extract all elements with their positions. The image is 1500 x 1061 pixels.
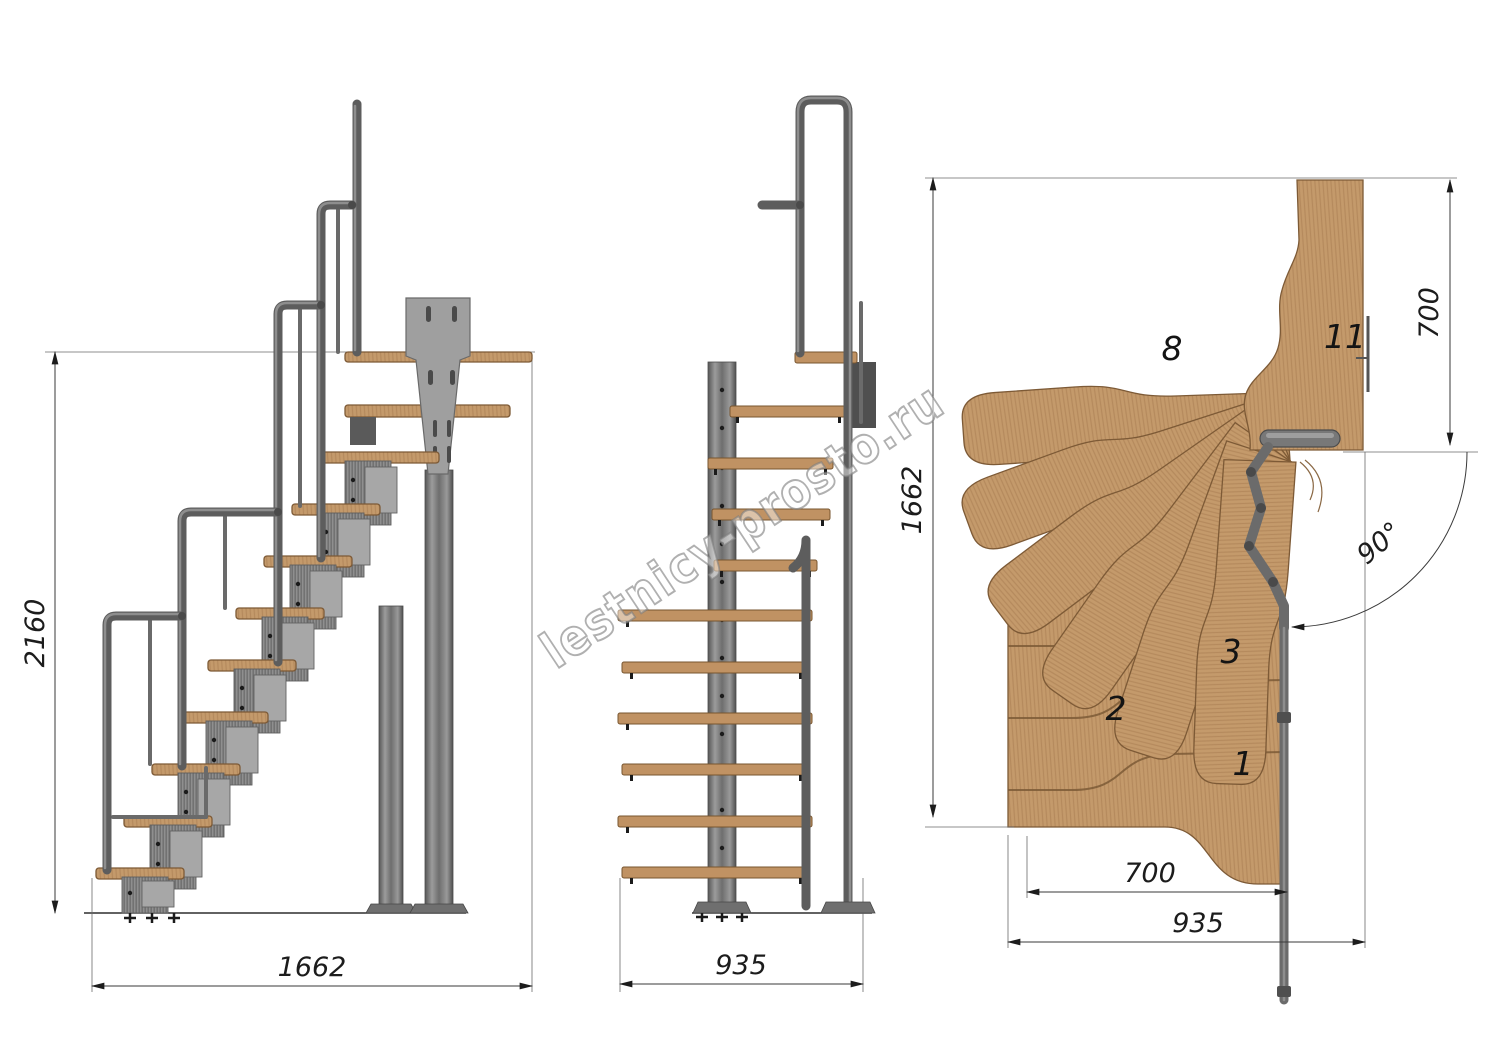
support-columns-side — [366, 470, 468, 913]
plan-view: 1662 700 90° 700 935 1 2 3 8 11 — [897, 178, 1478, 1000]
anchor-bolts — [124, 913, 180, 923]
step-label-2: 2 — [1106, 689, 1127, 728]
staircase-technical-drawing: 2160 1662 — [0, 0, 1500, 1061]
dim-label-plan-total-width: 935 — [1172, 908, 1224, 939]
dimension-plan-total-width: 935 — [1008, 908, 1365, 942]
dimension-side-length: 1662 — [92, 952, 532, 986]
watermark-text: lestnicy-prosto.ru — [531, 372, 955, 680]
dimension-turn-angle: 90° — [1292, 452, 1467, 627]
side-elevation-view: 2160 1662 — [20, 104, 535, 992]
drawing-canvas: 2160 1662 — [0, 0, 1500, 1061]
landing-bracket — [350, 417, 376, 445]
dimension-side-height: 2160 — [20, 352, 55, 913]
dimension-plan-exit-width: 700 — [1414, 180, 1450, 445]
step-label-3: 3 — [1221, 632, 1242, 671]
step-label-1: 1 — [1233, 744, 1254, 783]
dimension-plan-depth: 1662 — [897, 178, 933, 817]
plan-landing-piece — [1244, 180, 1363, 450]
central-mast — [693, 362, 751, 922]
dim-label-plan-depth: 1662 — [897, 466, 928, 535]
dimension-front-width: 935 — [620, 950, 863, 984]
dim-label-side-height: 2160 — [20, 599, 51, 668]
hidden-step-edges — [1300, 460, 1322, 512]
dim-label-side-length: 1662 — [278, 952, 347, 983]
step-label-11: 11 — [1324, 317, 1366, 356]
dim-label-plan-exit-width: 700 — [1414, 287, 1445, 339]
step-label-8: 8 — [1162, 329, 1183, 368]
wall-mounting-plate — [406, 298, 470, 474]
dim-label-front-width: 935 — [715, 950, 767, 981]
dim-label-turn-angle: 90° — [1351, 516, 1408, 571]
dim-label-plan-tread-run: 700 — [1124, 858, 1176, 889]
